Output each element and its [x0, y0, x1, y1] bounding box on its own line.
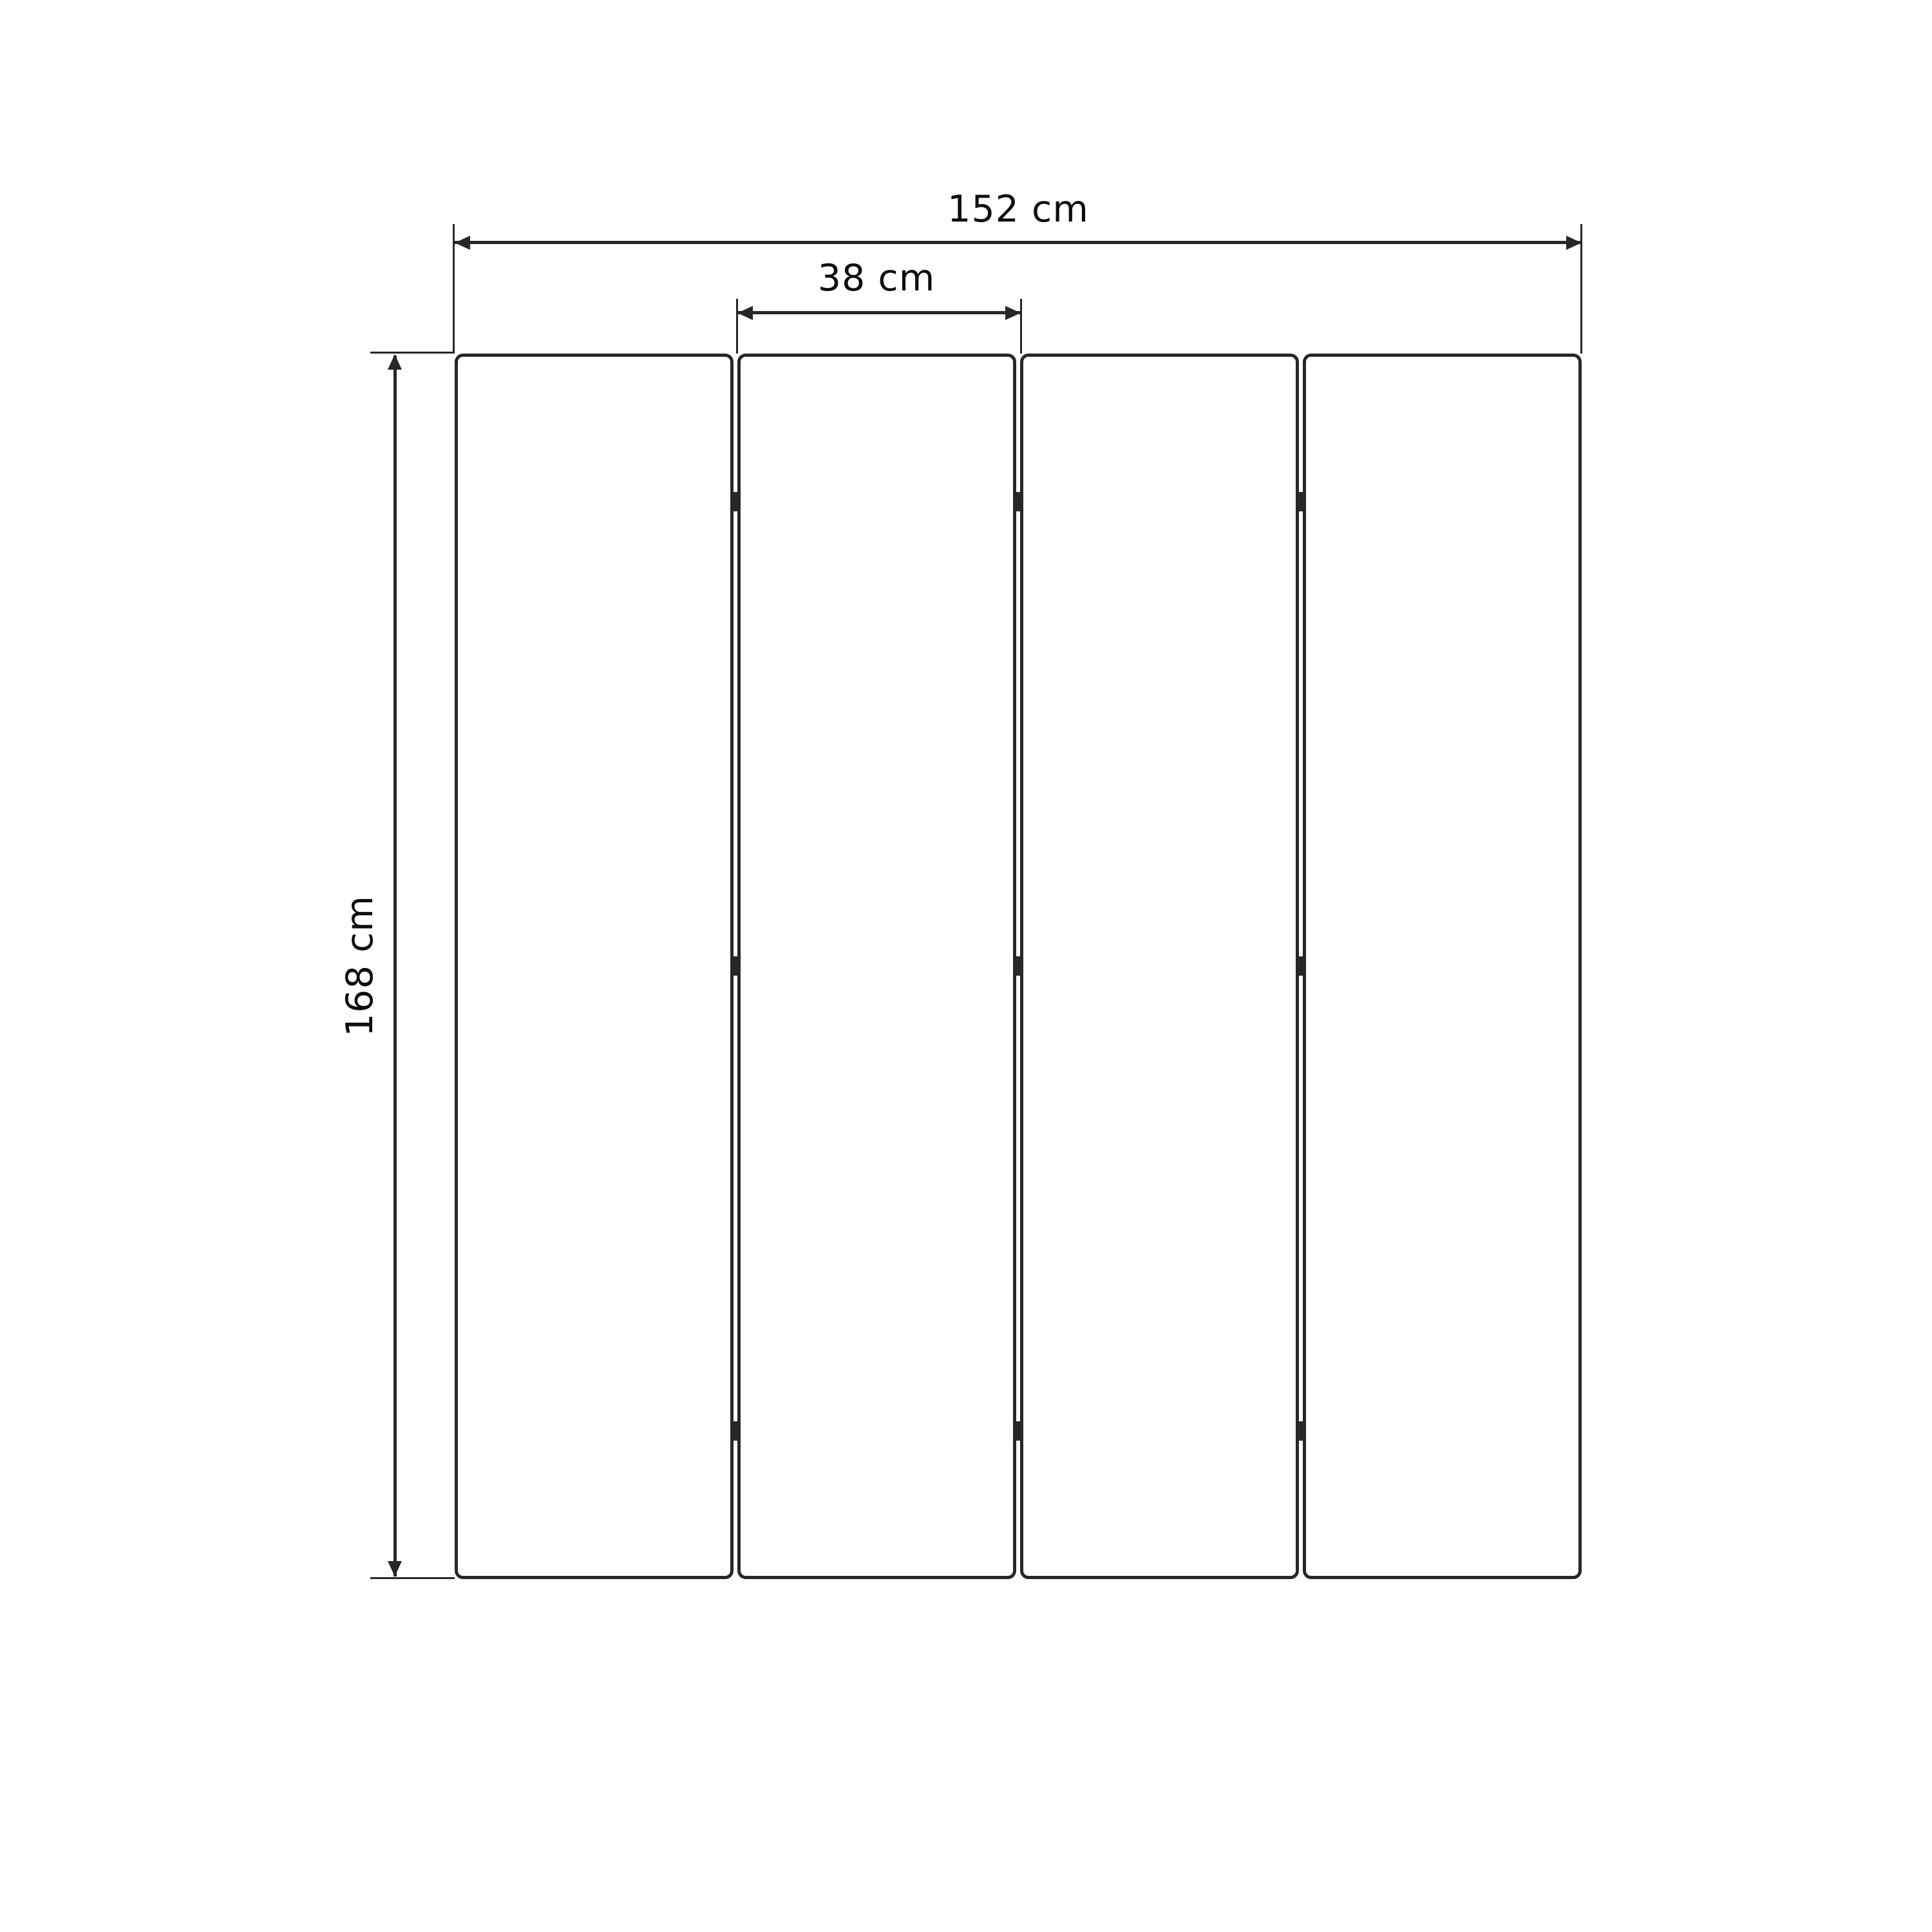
hinge-gap2-middle [1013, 956, 1023, 976]
height-dimension-line [393, 355, 397, 1577]
hinge-gap3-middle [1296, 956, 1306, 976]
hinge-gap3-bottom [1296, 1421, 1306, 1441]
arrowhead-down-icon [388, 1561, 402, 1577]
panel-2 [737, 354, 1016, 1579]
panel-width-label: 38 cm [715, 260, 1037, 297]
hinge-gap1-middle [730, 956, 741, 976]
hinge-gap2-top [1013, 492, 1023, 511]
hinge-gap2-bottom [1013, 1421, 1023, 1441]
hinge-gap1-bottom [730, 1421, 741, 1441]
hinge-gap1-top [730, 492, 741, 511]
height-label: 168 cm [342, 805, 379, 1127]
height-extension-line-bottom [370, 1577, 455, 1579]
panel-3 [1020, 354, 1299, 1579]
arrowhead-right-icon [1566, 236, 1582, 250]
total-width-dimension-line [455, 241, 1582, 244]
total-width-label: 152 cm [857, 191, 1179, 228]
panel-width-dimension-line [737, 311, 1021, 314]
arrowhead-left-icon [455, 236, 470, 250]
arrowhead-left-icon [737, 306, 753, 320]
panel-4 [1303, 354, 1582, 1579]
arrowhead-right-icon [1005, 306, 1021, 320]
hinge-gap3-top [1296, 492, 1306, 511]
height-extension-line-top [370, 352, 455, 354]
arrowhead-up-icon [388, 354, 402, 370]
panel-1 [455, 354, 734, 1579]
dimension-drawing: 152 cm 38 cm 168 cm [0, 0, 1932, 1932]
panels-row [455, 354, 1582, 1579]
